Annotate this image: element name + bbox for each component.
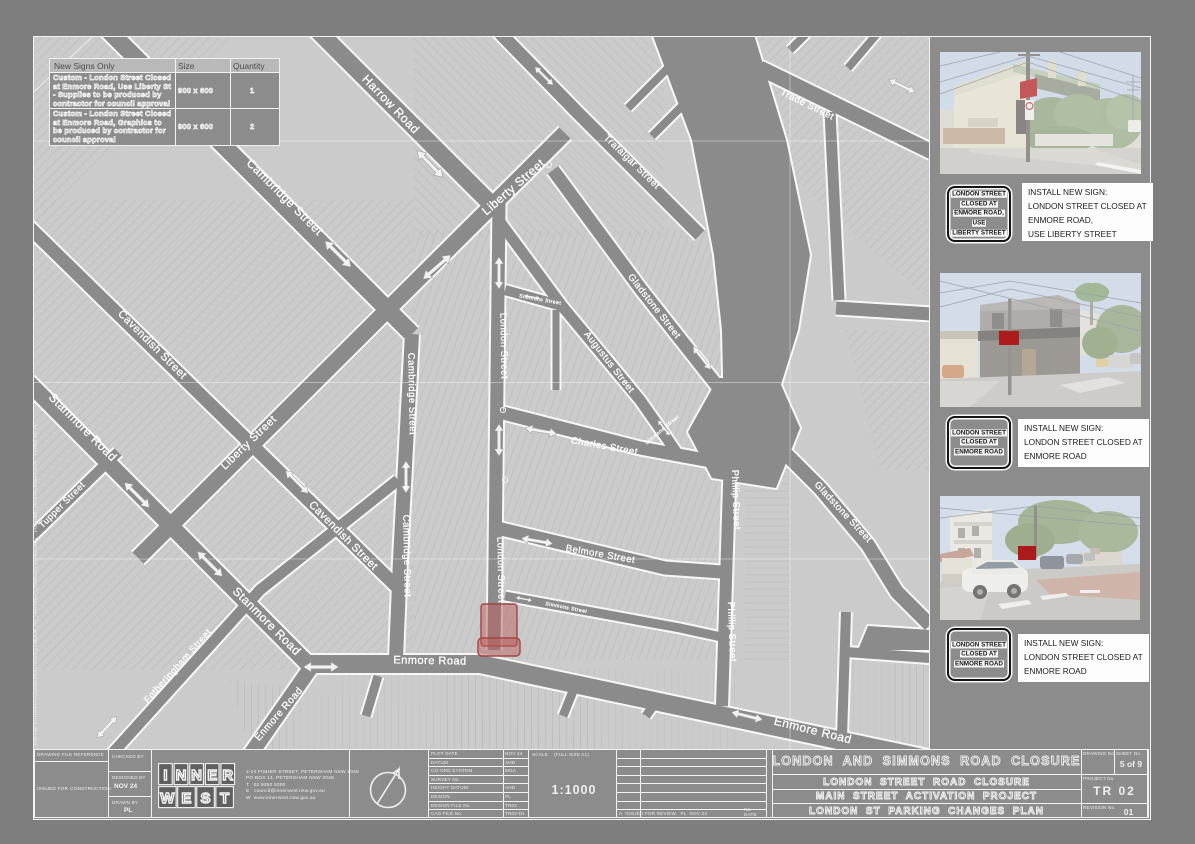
svg-text:E: E: [207, 767, 217, 784]
svg-text:W: W: [160, 790, 175, 807]
svg-text:London Street: London Street: [494, 537, 506, 603]
svg-text:Cambridge Street: Cambridge Street: [400, 515, 412, 598]
svg-text:E: E: [181, 790, 191, 807]
svg-text:R: R: [222, 767, 233, 784]
svg-text:Phillip Street: Phillip Street: [729, 470, 742, 531]
svg-text:Phillip Street: Phillip Street: [725, 602, 738, 663]
svg-text:London Street: London Street: [497, 313, 509, 379]
svg-text:Cambridge Street: Cambridge Street: [405, 353, 417, 436]
svg-text:N: N: [176, 767, 187, 784]
svg-text:T: T: [220, 790, 229, 807]
svg-text:S: S: [200, 790, 210, 807]
svg-text:Enmore Road: Enmore Road: [393, 654, 467, 667]
svg-text:N: N: [191, 767, 202, 784]
svg-text:I: I: [163, 767, 167, 784]
